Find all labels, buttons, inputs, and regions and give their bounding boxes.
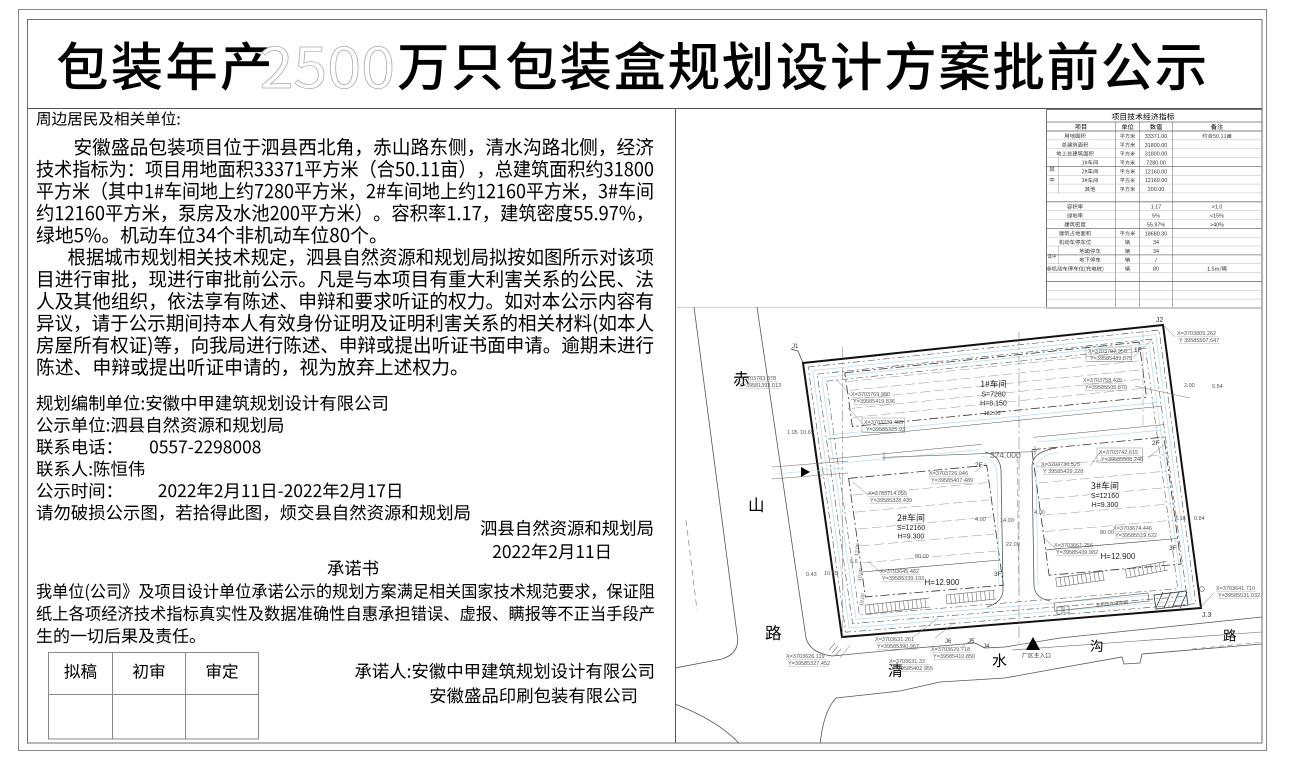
- svg-text:2F: 2F: [1152, 440, 1160, 447]
- svg-text:0.84: 0.84: [1194, 516, 1205, 522]
- svg-text:<15%: <15%: [1210, 214, 1224, 220]
- svg-text:H=8.150: H=8.150: [980, 401, 1007, 408]
- svg-text:18680.30: 18680.30: [1145, 231, 1167, 237]
- svg-text:10.65: 10.65: [824, 571, 838, 577]
- svg-text:12160.00: 12160.00: [1145, 178, 1167, 184]
- svg-text:34: 34: [1153, 249, 1159, 255]
- svg-text:S=12160: S=12160: [1091, 493, 1119, 500]
- svg-text:1.17: 1.17: [1151, 205, 1162, 211]
- svg-text:J1: J1: [792, 344, 799, 350]
- svg-text:S=7280: S=7280: [981, 392, 1005, 399]
- svg-text:10.00: 10.00: [859, 593, 867, 606]
- svg-text:3F: 3F: [994, 571, 1002, 578]
- svg-text:80.00: 80.00: [1100, 530, 1114, 536]
- svg-text:6.54: 6.54: [1212, 384, 1223, 390]
- svg-text:33371.00: 33371.00: [1145, 134, 1167, 140]
- svg-text:2.00: 2.00: [1184, 383, 1195, 389]
- svg-text:31800.00: 31800.00: [1145, 152, 1167, 158]
- svg-text:80.00: 80.00: [915, 554, 929, 560]
- svg-text:>40%: >40%: [1210, 222, 1224, 228]
- svg-text:80: 80: [1153, 267, 1159, 273]
- svg-text:H=12.900: H=12.900: [925, 578, 960, 587]
- svg-text:H=12.900: H=12.900: [1101, 552, 1136, 561]
- svg-text:14.00: 14.00: [1000, 518, 1014, 524]
- svg-text:6.16: 6.16: [1175, 516, 1186, 522]
- svg-text:374.000: 374.000: [990, 450, 1021, 460]
- svg-text:>1.0: >1.0: [1212, 205, 1223, 211]
- svg-text:J6: J6: [945, 639, 952, 645]
- svg-text:5.6: 5.6: [850, 559, 858, 565]
- svg-text:H=9.300: H=9.300: [898, 534, 925, 541]
- svg-text:0.43: 0.43: [806, 572, 817, 578]
- svg-text:7280.00: 7280.00: [1146, 160, 1166, 166]
- svg-text:34: 34: [1153, 240, 1159, 246]
- svg-text:1.05: 1.05: [787, 430, 798, 436]
- svg-text:5%: 5%: [1152, 214, 1160, 220]
- svg-text:2F: 2F: [975, 462, 983, 469]
- svg-text:J.3: J.3: [1202, 612, 1211, 619]
- svg-text:10.00: 10.00: [857, 568, 865, 581]
- svg-text:182.00: 182.00: [984, 411, 1001, 417]
- svg-text:H=9.300: H=9.300: [1092, 502, 1119, 509]
- svg-text:/: /: [1155, 258, 1157, 264]
- svg-text:J2: J2: [1156, 317, 1164, 324]
- svg-text:4.00: 4.00: [1034, 510, 1045, 516]
- svg-text:J4: J4: [983, 644, 990, 650]
- svg-text:12160.00: 12160.00: [1145, 169, 1167, 175]
- svg-text:4.00: 4.00: [975, 517, 986, 523]
- svg-text:S=12160: S=12160: [897, 525, 925, 532]
- svg-text:10.65: 10.65: [800, 430, 814, 436]
- svg-text:31800.00: 31800.00: [1145, 143, 1167, 149]
- svg-text:200.00: 200.00: [1148, 187, 1165, 193]
- svg-text:3F: 3F: [1169, 545, 1177, 552]
- svg-text:12.00: 12.00: [854, 543, 862, 556]
- svg-text:55.97%: 55.97%: [1147, 222, 1165, 228]
- svg-text:22.09: 22.09: [1006, 542, 1020, 548]
